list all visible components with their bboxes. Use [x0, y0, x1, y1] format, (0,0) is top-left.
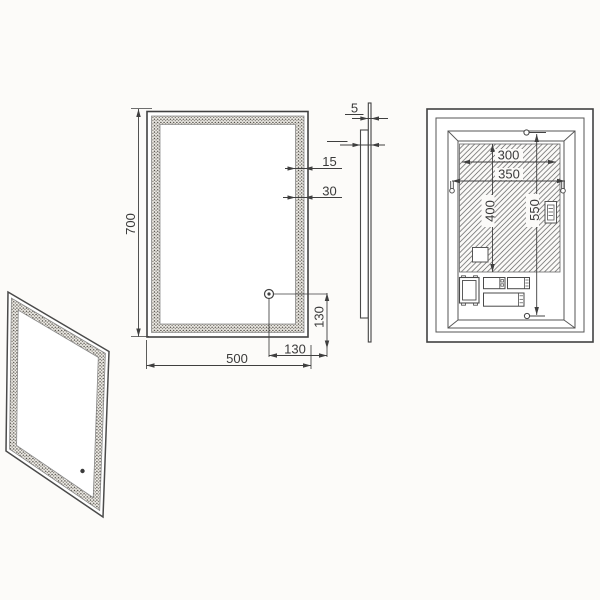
dim-depth: [327, 142, 385, 148]
perspective-sensor-dot: [80, 469, 84, 473]
dim-label-400: 400: [483, 200, 498, 222]
dim-label-700: 700: [123, 213, 138, 235]
dim-label-15: 15: [322, 154, 336, 169]
side-view: 5: [327, 101, 388, 343]
dim-sensor-offset-right: 130: [269, 342, 327, 357]
mirror-outline: [147, 112, 308, 338]
dim-sensor-offset-bottom: 130: [312, 293, 328, 357]
dim-label-350: 350: [498, 167, 520, 182]
terminal-block: [545, 202, 557, 224]
led-driver-2: [508, 278, 530, 289]
mirror-technical-drawing: 700 500 130 130 15: [0, 0, 600, 600]
led-driver-1: [484, 278, 506, 289]
dim-label-300: 300: [498, 148, 520, 163]
dim-label-30: 30: [322, 184, 336, 199]
dim-label-550: 550: [527, 199, 542, 221]
back-box-profile: [361, 130, 369, 318]
mirror-glass-profile: [368, 103, 371, 342]
dim-label-5: 5: [351, 101, 358, 116]
dim-label-130v: 130: [312, 306, 327, 328]
led-driver-3: [484, 293, 525, 306]
dim-label-130h: 130: [284, 342, 306, 357]
dim-label-500: 500: [226, 351, 248, 366]
junction-box: [460, 276, 480, 305]
back-view: 300 350 400 550: [427, 109, 593, 342]
front-view: 700 500 130 130 15: [123, 109, 342, 370]
dim-glass-thickness: 5: [345, 101, 388, 121]
drawing-canvas: 700 500 130 130 15: [0, 0, 600, 600]
sensor-back-box: [473, 248, 489, 263]
perspective-view: [6, 292, 109, 517]
